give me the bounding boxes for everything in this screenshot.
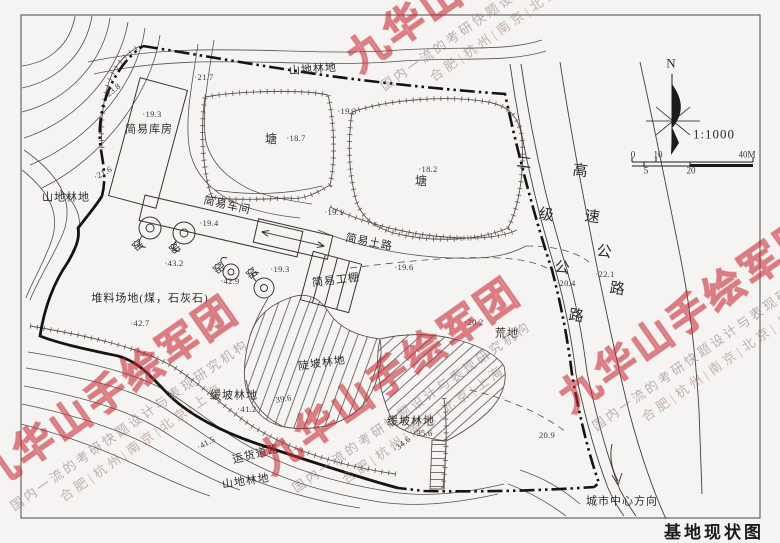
- north-label: N: [666, 57, 675, 70]
- area-label-pond-1: 塘: [265, 133, 277, 145]
- elevation-label: ·41.5: [196, 435, 217, 452]
- road-label-highway-char: 公: [596, 245, 613, 262]
- elevation-label: ·42.7: [130, 319, 149, 328]
- area-label-work-shed: 简易工棚: [312, 273, 361, 290]
- area-label-steep-slope-forest: 陡坡林地: [297, 355, 346, 373]
- scale-bar-tick: 10: [654, 151, 663, 160]
- road-label-highway-char: 路: [609, 282, 626, 299]
- road-label-secondary-road-char: 级: [538, 208, 555, 225]
- drawing-title: 基地现状图: [664, 518, 764, 543]
- elevation-label: ·19.4: [199, 219, 218, 228]
- road-label-secondary-road-char: 二: [516, 156, 533, 173]
- road-label-secondary-road-char: 路: [568, 309, 585, 326]
- area-label-workshop: 简易车间: [202, 196, 251, 217]
- elevation-label: ·22.1: [595, 270, 614, 279]
- area-label-mountain-forest-top: 山地林地: [289, 63, 338, 77]
- kiln-label: 窑: [245, 266, 261, 282]
- area-label-warehouse: 简易库房: [125, 125, 173, 136]
- road-label-highway-char: 速: [584, 210, 601, 227]
- map-label-layer: 山地林地·21.7·23.8·19.3简易库房塘·18.7·19.3·18.2塘…: [0, 0, 780, 543]
- site-plan-page: 山地林地·21.7·23.8·19.3简易库房塘·18.7·19.3·18.2塘…: [0, 0, 780, 543]
- road-label-dirt-road: 简易土路: [344, 233, 393, 253]
- area-label-wasteland: 荒地: [495, 329, 519, 340]
- area-label-stockpile: 堆料场地(煤，石灰石): [91, 294, 208, 305]
- elevation-label: ·43.2: [164, 259, 183, 268]
- elevation-label: ·19.3: [337, 107, 356, 116]
- scale-bar-tick: 20: [687, 167, 696, 176]
- elevation-label: 20.9: [539, 431, 555, 440]
- elevation-label: ·23.8: [102, 82, 122, 101]
- elevation-label: ·20.2: [464, 318, 483, 327]
- elevation-label: ·39.6: [272, 393, 292, 405]
- area-label-pond-2: 塘: [415, 175, 427, 187]
- elevation-label: ·21.7: [194, 73, 213, 82]
- scale-text: 1:1000: [693, 128, 735, 141]
- road-label-secondary-road-char: 公: [554, 261, 571, 278]
- area-label-gentle-slope-forest-right: 缓坡林地: [387, 417, 435, 428]
- scale-bar-tick: 5: [644, 167, 649, 176]
- elevation-label: ·42.9: [220, 277, 239, 286]
- city-center-direction-label: 城市中心方向: [586, 497, 658, 508]
- elevation-label: ·18.7: [286, 134, 305, 143]
- elevation-label: ·18.2: [418, 165, 437, 174]
- area-label-mountain-forest-bottom: 山地林地: [221, 473, 270, 491]
- elevation-label: ·20.4: [556, 279, 575, 288]
- road-label-highway-char: 高: [572, 164, 589, 181]
- road-label-freight-road: 运货道路: [231, 444, 280, 466]
- elevation-label: ·19.3: [270, 265, 289, 274]
- kiln-label: 窑: [212, 261, 228, 277]
- elevation-label: ·19.3: [142, 110, 161, 119]
- area-label-mountain-forest-left: 山地林地: [42, 193, 90, 204]
- elevation-label: ·21.6: [93, 165, 114, 182]
- kiln-label: 窑: [131, 238, 147, 254]
- scale-bar-tick: 0: [631, 151, 636, 160]
- elevation-label: ·19.6: [394, 263, 413, 272]
- elevation-label: ·34.6: [392, 435, 412, 454]
- kiln-label: 窑: [168, 241, 184, 257]
- elevation-label: ·41.2: [237, 405, 256, 414]
- elevation-label: ·19.1: [324, 208, 343, 217]
- scale-bar-tick: 40M: [738, 151, 755, 160]
- area-label-gentle-slope-forest-left: 缓坡林地: [210, 391, 258, 402]
- elevation-label: ·35.6: [413, 429, 432, 438]
